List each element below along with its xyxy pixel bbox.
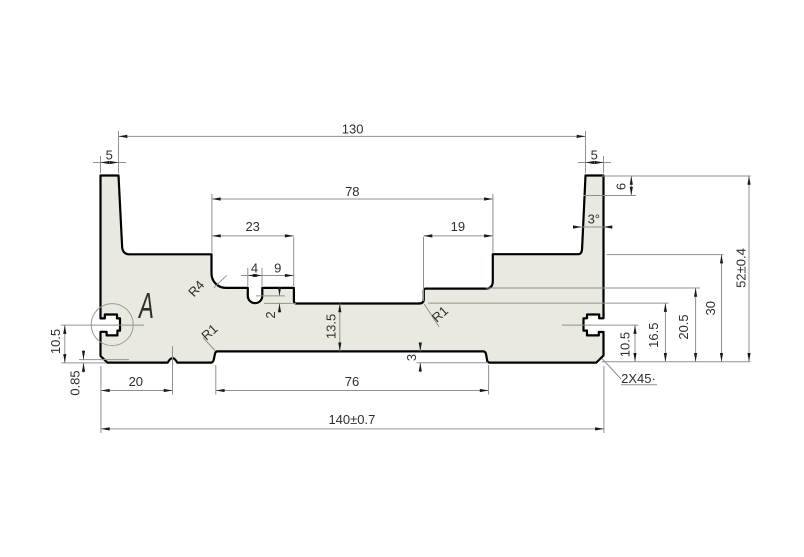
svg-text:16.5: 16.5 <box>646 323 661 348</box>
svg-text:140±0.7: 140±0.7 <box>328 412 375 427</box>
svg-text:130: 130 <box>342 121 364 136</box>
svg-text:23: 23 <box>245 219 259 234</box>
svg-text:19: 19 <box>451 219 465 234</box>
svg-text:13.5: 13.5 <box>324 314 339 339</box>
svg-text:78: 78 <box>345 184 359 199</box>
svg-text:6: 6 <box>613 183 628 190</box>
svg-text:4: 4 <box>251 260 258 275</box>
svg-text:5: 5 <box>591 147 598 162</box>
svg-text:2X45·: 2X45· <box>621 371 656 386</box>
svg-text:30: 30 <box>703 301 718 315</box>
svg-text:0.85: 0.85 <box>68 370 83 395</box>
svg-text:5: 5 <box>106 147 113 162</box>
svg-text:10.5: 10.5 <box>617 332 632 357</box>
svg-text:20: 20 <box>129 374 143 389</box>
svg-text:10.5: 10.5 <box>48 329 63 354</box>
svg-text:3°: 3° <box>588 212 600 227</box>
svg-text:3: 3 <box>404 354 419 361</box>
svg-text:76: 76 <box>345 374 359 389</box>
svg-text:52±0.4: 52±0.4 <box>734 248 749 288</box>
svg-text:20.5: 20.5 <box>676 314 691 339</box>
svg-text:2: 2 <box>263 311 278 318</box>
svg-text:9: 9 <box>274 260 281 275</box>
svg-text:A: A <box>138 287 154 327</box>
